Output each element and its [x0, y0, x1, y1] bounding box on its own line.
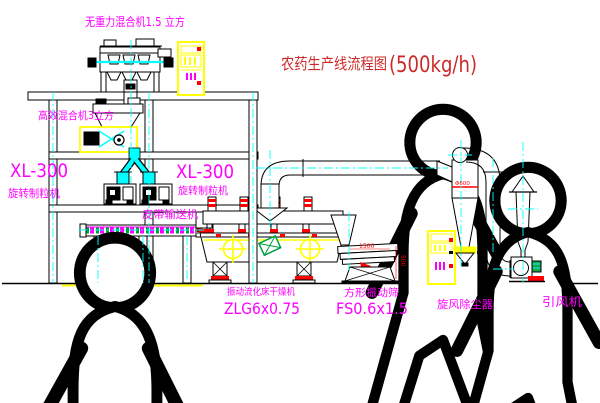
- label-belt-conveyor: 皮带输送机: [142, 207, 198, 221]
- fan-motor: [532, 261, 541, 272]
- indicator-light: [449, 238, 453, 242]
- control-cabinet-ground: [428, 231, 455, 284]
- dim-screen-length: 1500: [359, 243, 374, 250]
- label-fan: 引风机: [542, 295, 582, 309]
- high-efficiency-mixer: [80, 98, 143, 152]
- dim-screen-height: 500: [399, 255, 406, 267]
- label-granulator-mid-model: XL-300: [176, 161, 234, 183]
- cyclone-dust-collector: [449, 148, 481, 267]
- label-high-efficiency-mixer: 高效混合机3立方: [38, 109, 114, 122]
- label-dryer-model: ZLG6x0.75: [224, 299, 300, 318]
- process-flow-diagram: 农药生产线流程图 (500kg/h) 无重力混合机1.5 立方 高效混合机3立方…: [0, 0, 600, 403]
- label-screen-name: 方形振动筛: [344, 286, 399, 299]
- label-weightless-mixer: 无重力混合机1.5 立方: [85, 14, 185, 29]
- rotary-granulators: [104, 172, 172, 205]
- control-cabinet-top: [178, 42, 204, 95]
- indicator-light: [449, 264, 453, 268]
- floor-slab-middle: [49, 152, 258, 159]
- page-title-capacity: (500kg/h): [389, 53, 477, 78]
- dryer-foot-left: [209, 262, 231, 283]
- label-cyclone: 旋风除尘器: [437, 297, 493, 311]
- cyclone-body: [452, 160, 478, 198]
- floor-slab-top: [28, 92, 258, 100]
- label-dryer-name: 振动流化床干燥机: [227, 286, 295, 298]
- fan-base: [528, 276, 544, 281]
- label-screen-model: FS0.6x1.5: [336, 299, 408, 318]
- label-granulator-left-model: XL-300: [10, 160, 68, 182]
- dim-cyclone-diameter: Φ600: [455, 181, 470, 187]
- induced-draft-fan: [509, 257, 545, 282]
- indicator-light: [197, 81, 201, 85]
- dryer-foot-right: [293, 262, 315, 283]
- worker-figure-ground: [40, 238, 208, 403]
- cad-drawing: 农药生产线流程图 (500kg/h) 无重力混合机1.5 立方 高效混合机3立方…: [0, 0, 600, 403]
- page-title: 农药生产线流程图: [281, 55, 387, 73]
- label-granulator-left-name: 旋转制粒机: [8, 186, 60, 200]
- label-granulator-mid-name: 旋转制粒机: [178, 184, 228, 197]
- indicator-light: [197, 47, 201, 51]
- dryer-spring-mounts: [206, 224, 310, 233]
